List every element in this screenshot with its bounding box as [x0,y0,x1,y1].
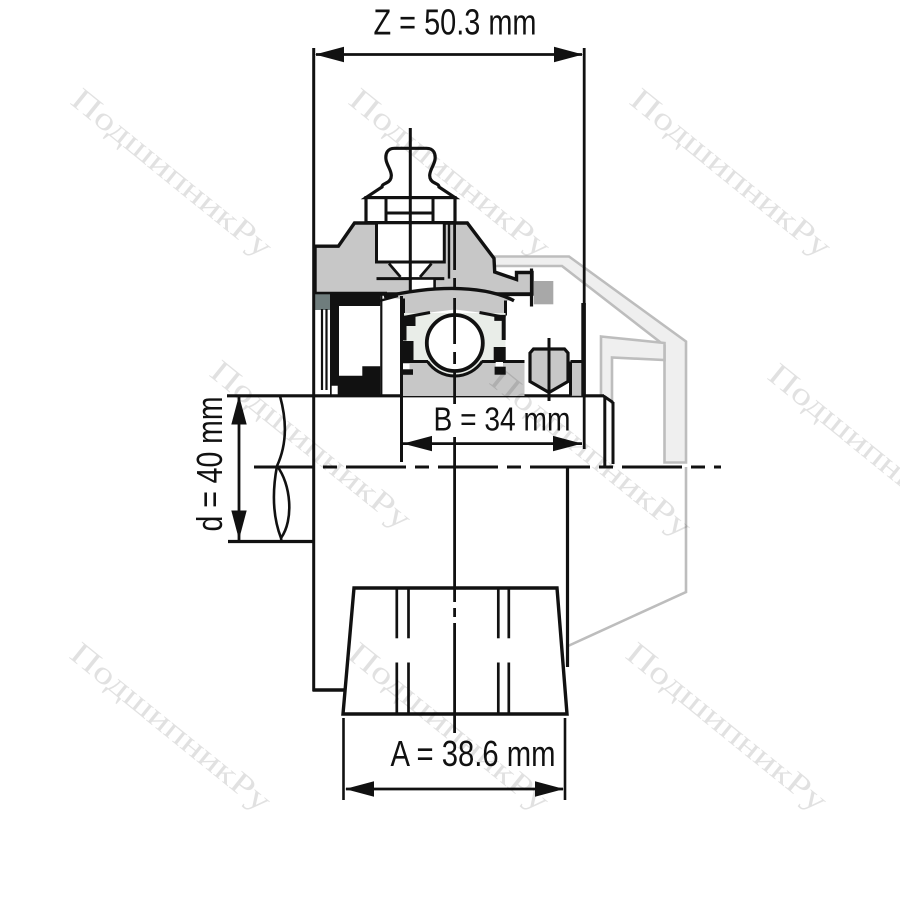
svg-text:d = 40 mm: d = 40 mm [189,397,230,532]
svg-text:Z = 50.3 mm: Z = 50.3 mm [374,2,537,43]
